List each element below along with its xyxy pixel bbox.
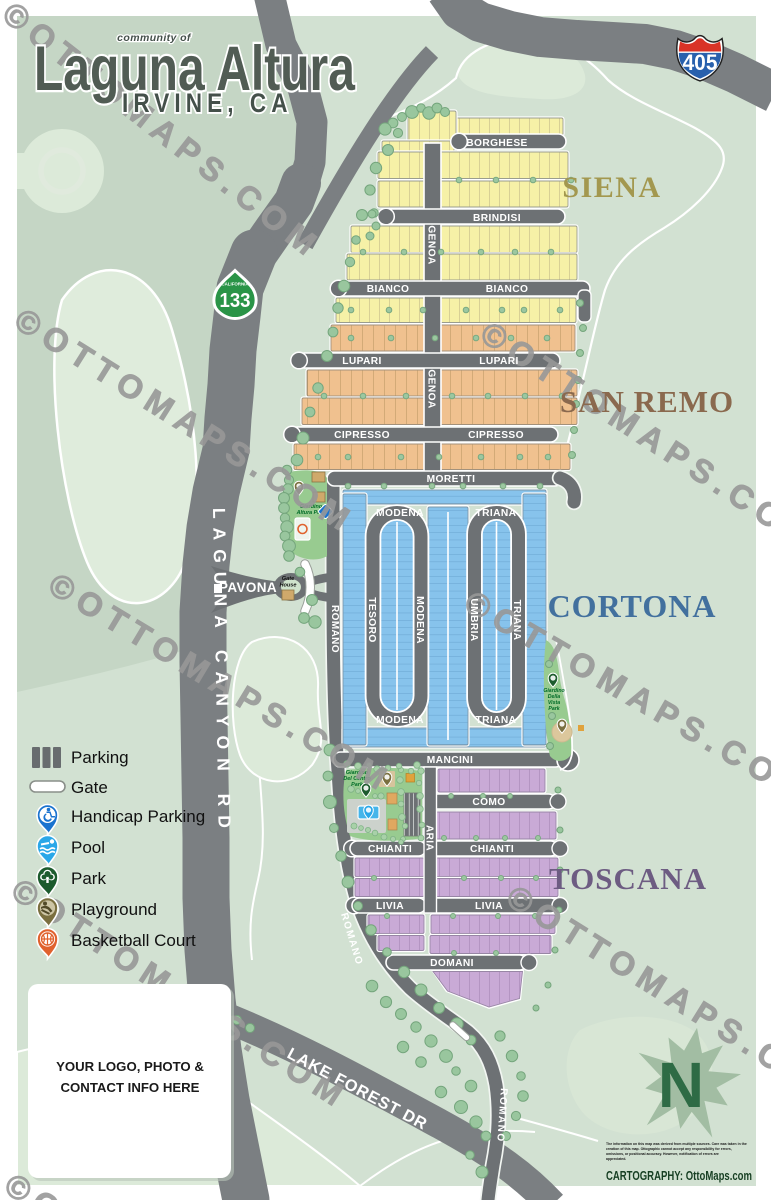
svg-text:Gate: Gate bbox=[71, 778, 108, 797]
svg-text:MODENA: MODENA bbox=[414, 596, 425, 644]
svg-text:MANCINI: MANCINI bbox=[427, 755, 473, 766]
svg-text:MODENA: MODENA bbox=[376, 508, 424, 519]
svg-text:LIVIA: LIVIA bbox=[376, 901, 404, 912]
svg-text:ROMANO: ROMANO bbox=[329, 605, 340, 653]
svg-text:LUPARI: LUPARI bbox=[479, 356, 519, 367]
svg-text:CORTONA: CORTONA bbox=[548, 588, 717, 624]
svg-text:GENOA: GENOA bbox=[425, 225, 436, 265]
svg-text:CONTACT INFO HERE: CONTACT INFO HERE bbox=[61, 1080, 200, 1095]
svg-text:PAVONA: PAVONA bbox=[219, 580, 277, 595]
svg-text:appreciated.: appreciated. bbox=[606, 1157, 626, 1161]
svg-text:House: House bbox=[279, 583, 296, 589]
svg-text:TRIANA: TRIANA bbox=[476, 508, 517, 519]
svg-text:TESORO: TESORO bbox=[366, 597, 377, 642]
svg-text:GENOA: GENOA bbox=[425, 369, 436, 409]
svg-text:omissions, or positional accur: omissions, or positional accuracy. Howev… bbox=[606, 1152, 719, 1156]
svg-text:Pool: Pool bbox=[71, 838, 105, 857]
svg-text:TRIANA: TRIANA bbox=[511, 600, 522, 641]
svg-text:BIANCO: BIANCO bbox=[367, 284, 410, 295]
svg-text:N: N bbox=[658, 1049, 704, 1121]
svg-text:BRINDISI: BRINDISI bbox=[473, 213, 521, 224]
svg-text:DOMANI: DOMANI bbox=[430, 958, 474, 969]
svg-text:Gate: Gate bbox=[282, 576, 294, 582]
svg-text:LUPARI: LUPARI bbox=[342, 356, 382, 367]
svg-text:BIANCO: BIANCO bbox=[486, 284, 529, 295]
svg-text:TRIANA: TRIANA bbox=[476, 715, 517, 726]
svg-text:creation of this map. Ottograp: creation of this map. Ottographic cannot… bbox=[606, 1147, 732, 1151]
svg-text:133: 133 bbox=[220, 290, 251, 312]
svg-text:MODENA: MODENA bbox=[376, 715, 424, 726]
svg-text:CIPRESSO: CIPRESSO bbox=[334, 430, 390, 441]
svg-text:Handicap Parking: Handicap Parking bbox=[71, 807, 205, 826]
svg-text:SIENA: SIENA bbox=[562, 171, 661, 204]
svg-text:MORETTI: MORETTI bbox=[427, 474, 476, 485]
svg-text:CARTOGRAPHY: OttoMaps.com: CARTOGRAPHY: OttoMaps.com bbox=[606, 1169, 752, 1183]
svg-text:COMO: COMO bbox=[472, 797, 505, 808]
svg-text:Park: Park bbox=[71, 869, 106, 888]
svg-text:LIVIA: LIVIA bbox=[475, 901, 503, 912]
svg-text:Park: Park bbox=[548, 706, 560, 712]
svg-text:CHIANTI: CHIANTI bbox=[470, 844, 514, 855]
svg-text:IRVINE, CA: IRVINE, CA bbox=[122, 89, 293, 118]
svg-text:405: 405 bbox=[683, 50, 718, 75]
svg-text:SAN REMO: SAN REMO bbox=[560, 384, 734, 419]
svg-text:CIPRESSO: CIPRESSO bbox=[468, 430, 524, 441]
svg-text:BORGHESE: BORGHESE bbox=[466, 138, 528, 149]
svg-text:CALIFORNIA: CALIFORNIA bbox=[221, 282, 249, 287]
svg-text:UMBRIA: UMBRIA bbox=[468, 598, 479, 641]
svg-text:Parking: Parking bbox=[71, 748, 129, 767]
svg-text:Playground: Playground bbox=[71, 900, 157, 919]
svg-text:TOSCANA: TOSCANA bbox=[549, 861, 707, 896]
svg-text:The information on this map wa: The information on this map was derived … bbox=[606, 1142, 747, 1146]
svg-text:CHIANTI: CHIANTI bbox=[368, 844, 412, 855]
svg-text:ARIA: ARIA bbox=[423, 825, 434, 851]
svg-text:Basketball Court: Basketball Court bbox=[71, 931, 196, 950]
svg-text:YOUR LOGO, PHOTO &: YOUR LOGO, PHOTO & bbox=[56, 1059, 204, 1074]
